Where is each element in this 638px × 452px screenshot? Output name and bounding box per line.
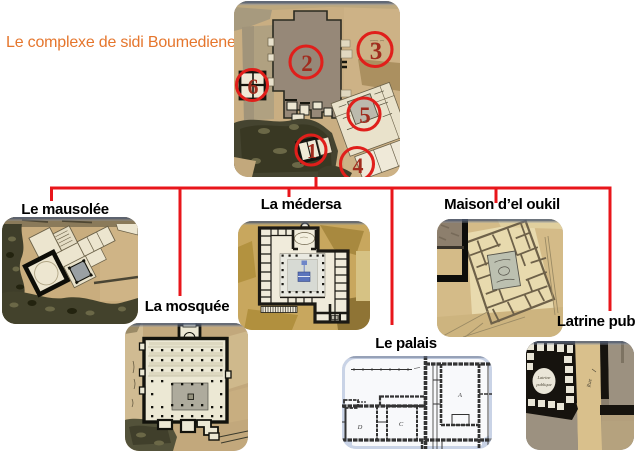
svg-text:1: 1 (307, 139, 318, 163)
svg-text:6: 6 (248, 74, 259, 99)
svg-text:C: C (399, 421, 404, 428)
svg-text:2: 2 (301, 51, 313, 76)
svg-text:A: A (457, 392, 462, 399)
svg-text:publique: publique (535, 382, 551, 387)
svg-text:4: 4 (353, 153, 364, 177)
svg-text:Latrine: Latrine (537, 375, 551, 380)
svg-text:5: 5 (359, 103, 371, 128)
svg-text:3: 3 (370, 38, 383, 65)
svg-text:D: D (357, 424, 363, 431)
